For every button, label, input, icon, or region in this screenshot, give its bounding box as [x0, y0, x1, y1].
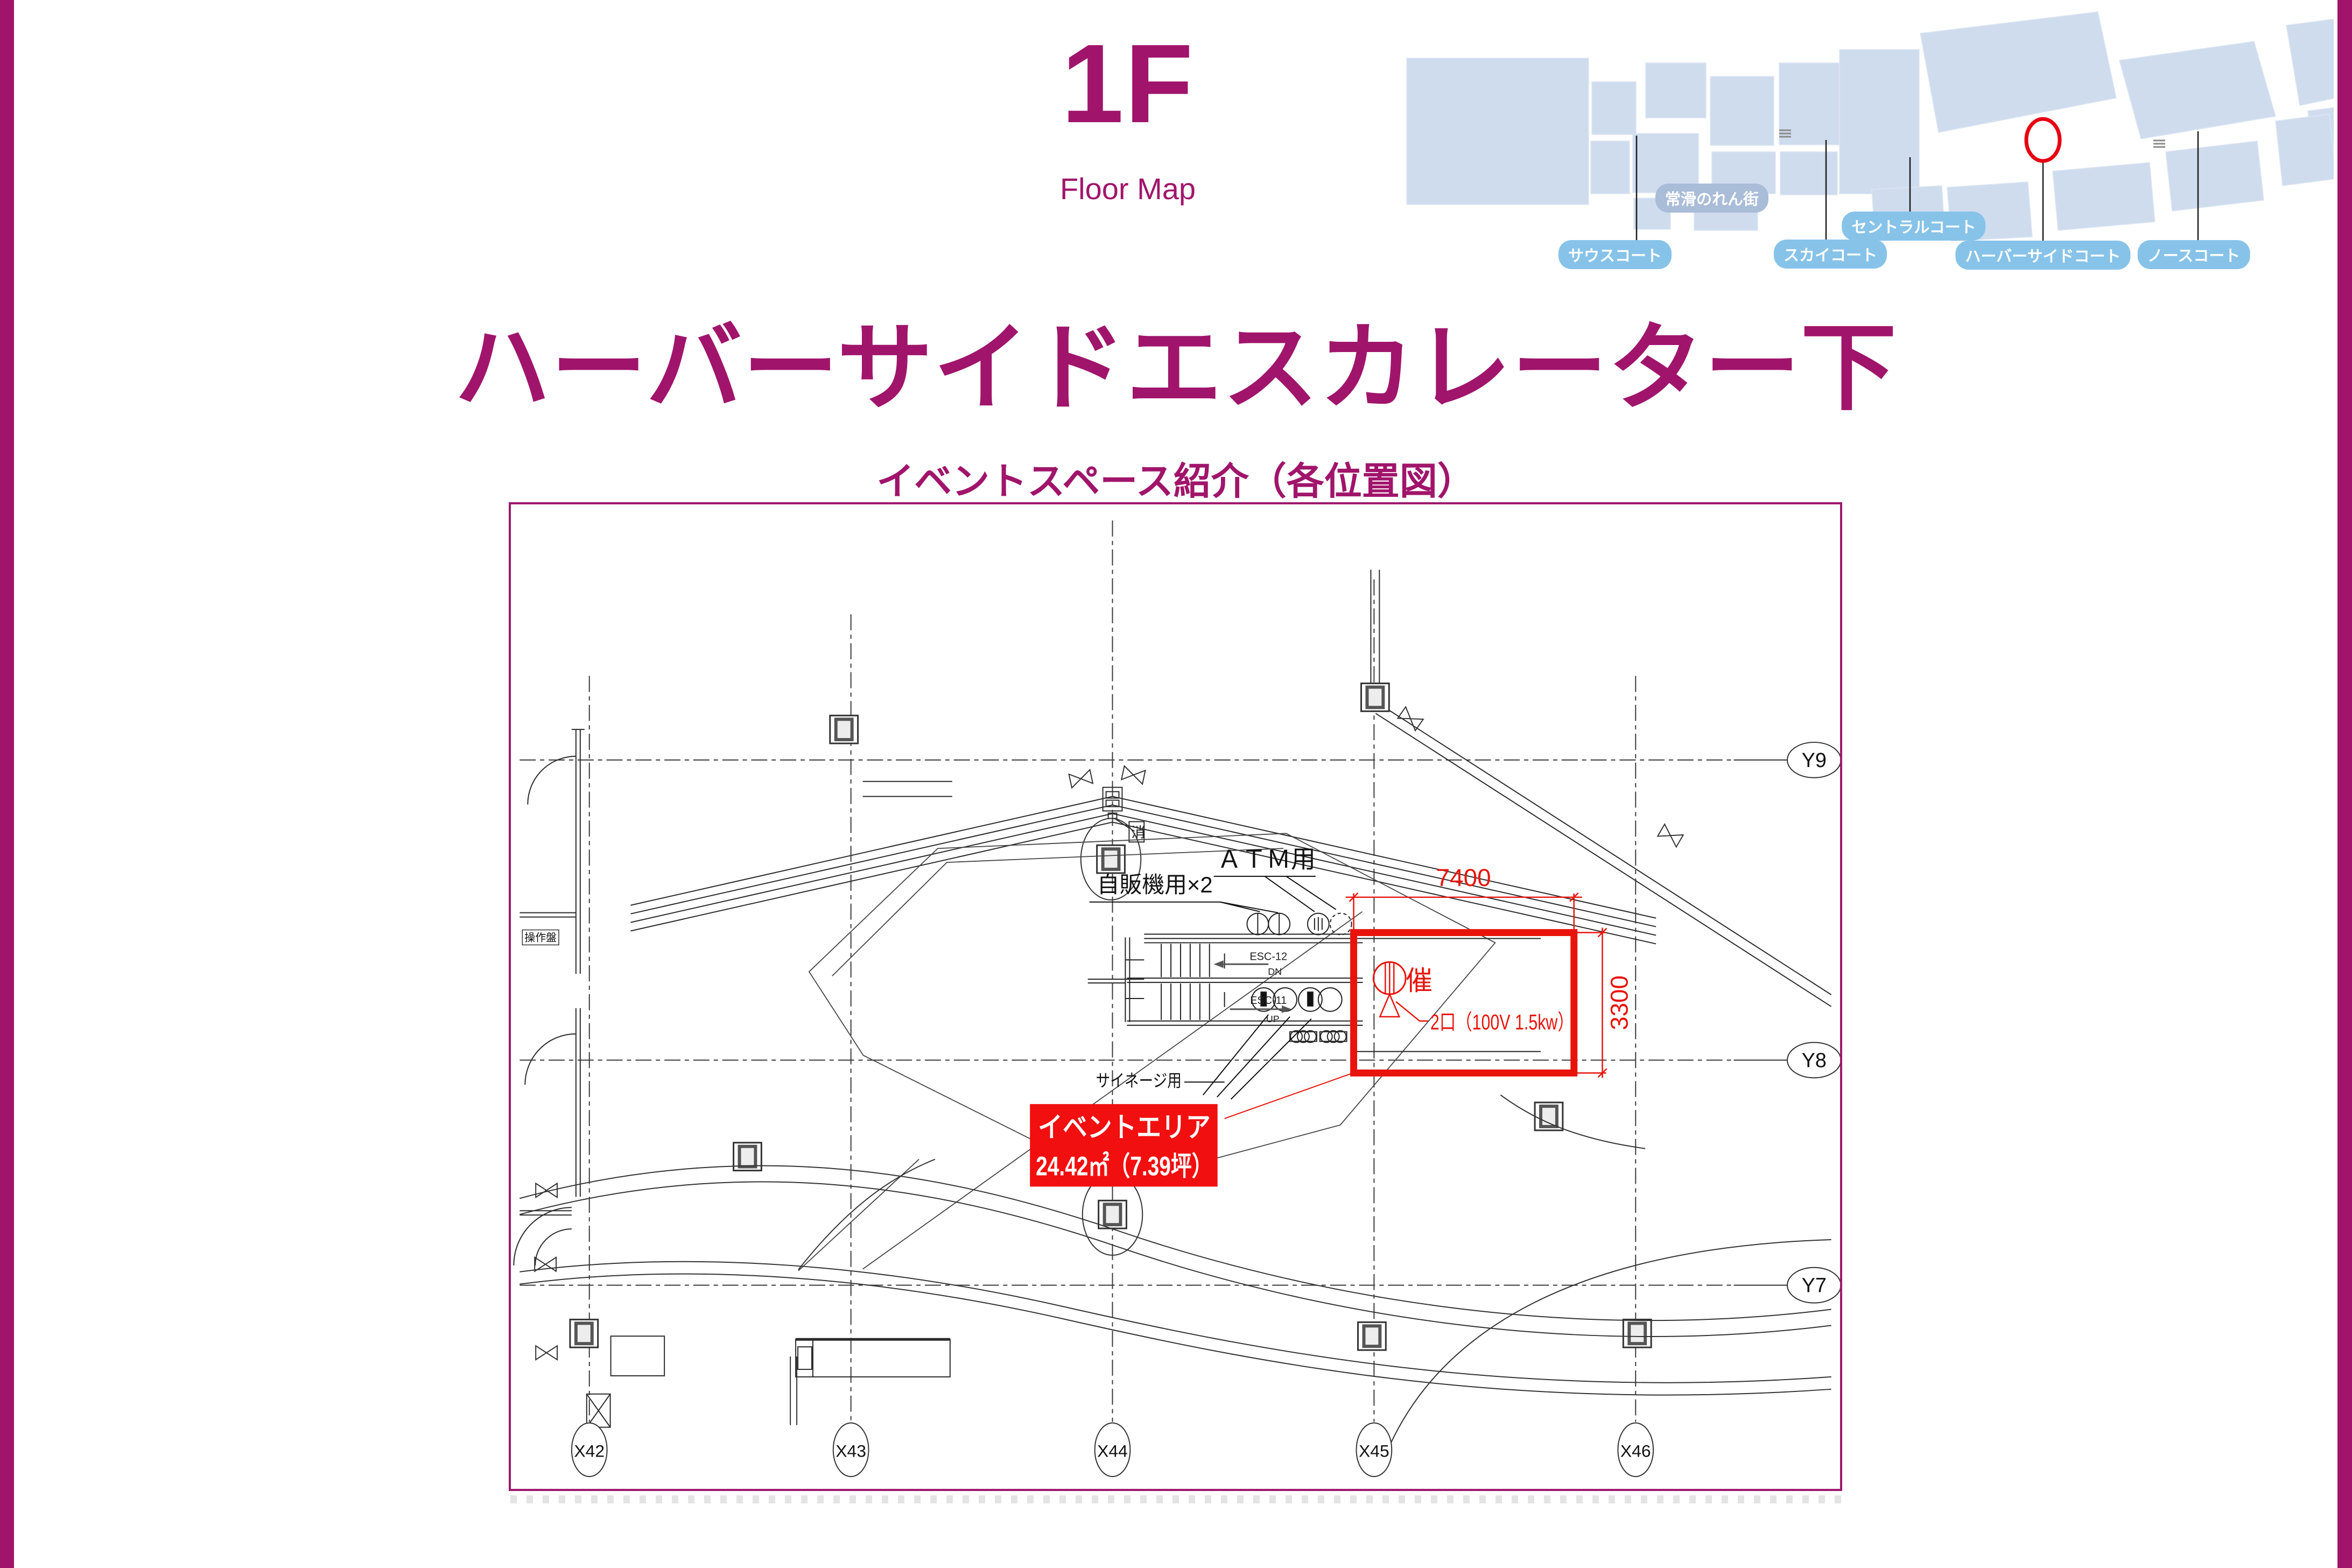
location-marker-circle	[2026, 119, 2060, 161]
page-subtitle: イベントスペース紹介（各位置図）	[14, 451, 2337, 505]
roof-lines	[630, 569, 1831, 1006]
event-area-size: 24.42㎡（7.39坪）	[1036, 1151, 1213, 1182]
floor-title: 1F	[1042, 28, 1214, 140]
svg-text:操作盤: 操作盤	[524, 931, 557, 944]
minimap-label-noren-street: 常滑のれん街	[1655, 184, 1768, 213]
minimap-label-north-court: ノースコート	[2138, 240, 2250, 269]
event-area-red-annotations: 7400 3300 催 2口（100V 1.5kw）	[1225, 864, 1633, 1119]
planter-boxes	[587, 1336, 950, 1427]
grid-bubble-x42: X42	[574, 1441, 605, 1460]
atm-label: ＡＴＭ用	[1217, 846, 1316, 873]
grid-centerlines	[519, 521, 1733, 1422]
esc-down-id: ESC-12	[1249, 951, 1287, 962]
atm-leaders	[1214, 876, 1336, 912]
floor-plan-drawing: 消	[511, 504, 1840, 1489]
event-area-label: イベントエリア 24.42㎡（7.39坪）	[1030, 1104, 1217, 1186]
left-accent-bar	[0, 0, 14, 1568]
event-mark: 催	[1406, 966, 1433, 996]
plan-bottom-dashes	[510, 1495, 1842, 1503]
grid-bubble-x43: X43	[836, 1441, 866, 1460]
grid-bubble-x46: X46	[1620, 1441, 1651, 1460]
page-title: ハーバーサイドエスカレーター下	[14, 313, 2337, 424]
grid-bubble-x45: X45	[1359, 1441, 1389, 1460]
floor-map-label: Floor Map	[1042, 171, 1214, 206]
signage-leaders	[1184, 1015, 1311, 1099]
outlet-label: 2口（100V 1.5kw）	[1430, 1011, 1574, 1035]
minimap-label-central-court: セントラルコート	[1842, 212, 1985, 241]
esc-down-dir: DN	[1268, 966, 1282, 977]
floor-plan-frame: 消	[509, 502, 1842, 1491]
grid-bubble-y9: Y9	[1802, 749, 1827, 772]
floor-opening-outline	[798, 833, 1495, 1270]
right-accent-bar	[2337, 0, 2352, 1568]
signage-label: サイネージ用	[1096, 1071, 1182, 1090]
width-dimension: 7400	[1436, 864, 1491, 891]
esc-up-id: ESC-11	[1250, 995, 1287, 1007]
minimap-label-harborside-court: ハーバーサイドコート	[1955, 241, 2130, 270]
minimap-label-south-court: サウスコート	[1558, 240, 1672, 269]
height-dimension: 3300	[1605, 975, 1633, 1030]
grid-bubble-y8: Y8	[1802, 1049, 1827, 1072]
grid-bubble-x44: X44	[1097, 1441, 1128, 1460]
vending-label: 自販機用×2	[1097, 872, 1213, 897]
control-panel-label: 操作盤	[522, 930, 559, 945]
minimap-label-sky-court: スカイコート	[1774, 240, 1887, 269]
vending-leaders	[1090, 902, 1278, 913]
grid-bubble-y7: Y7	[1802, 1275, 1827, 1297]
grid-bubble-leaders	[1733, 760, 1787, 1285]
event-area-title: イベントエリア	[1038, 1112, 1211, 1143]
mall-overview-minimap: 常滑のれん街 サウスコート スカイコート セントラルコート ハーバーサイドコート…	[1402, 11, 2334, 275]
